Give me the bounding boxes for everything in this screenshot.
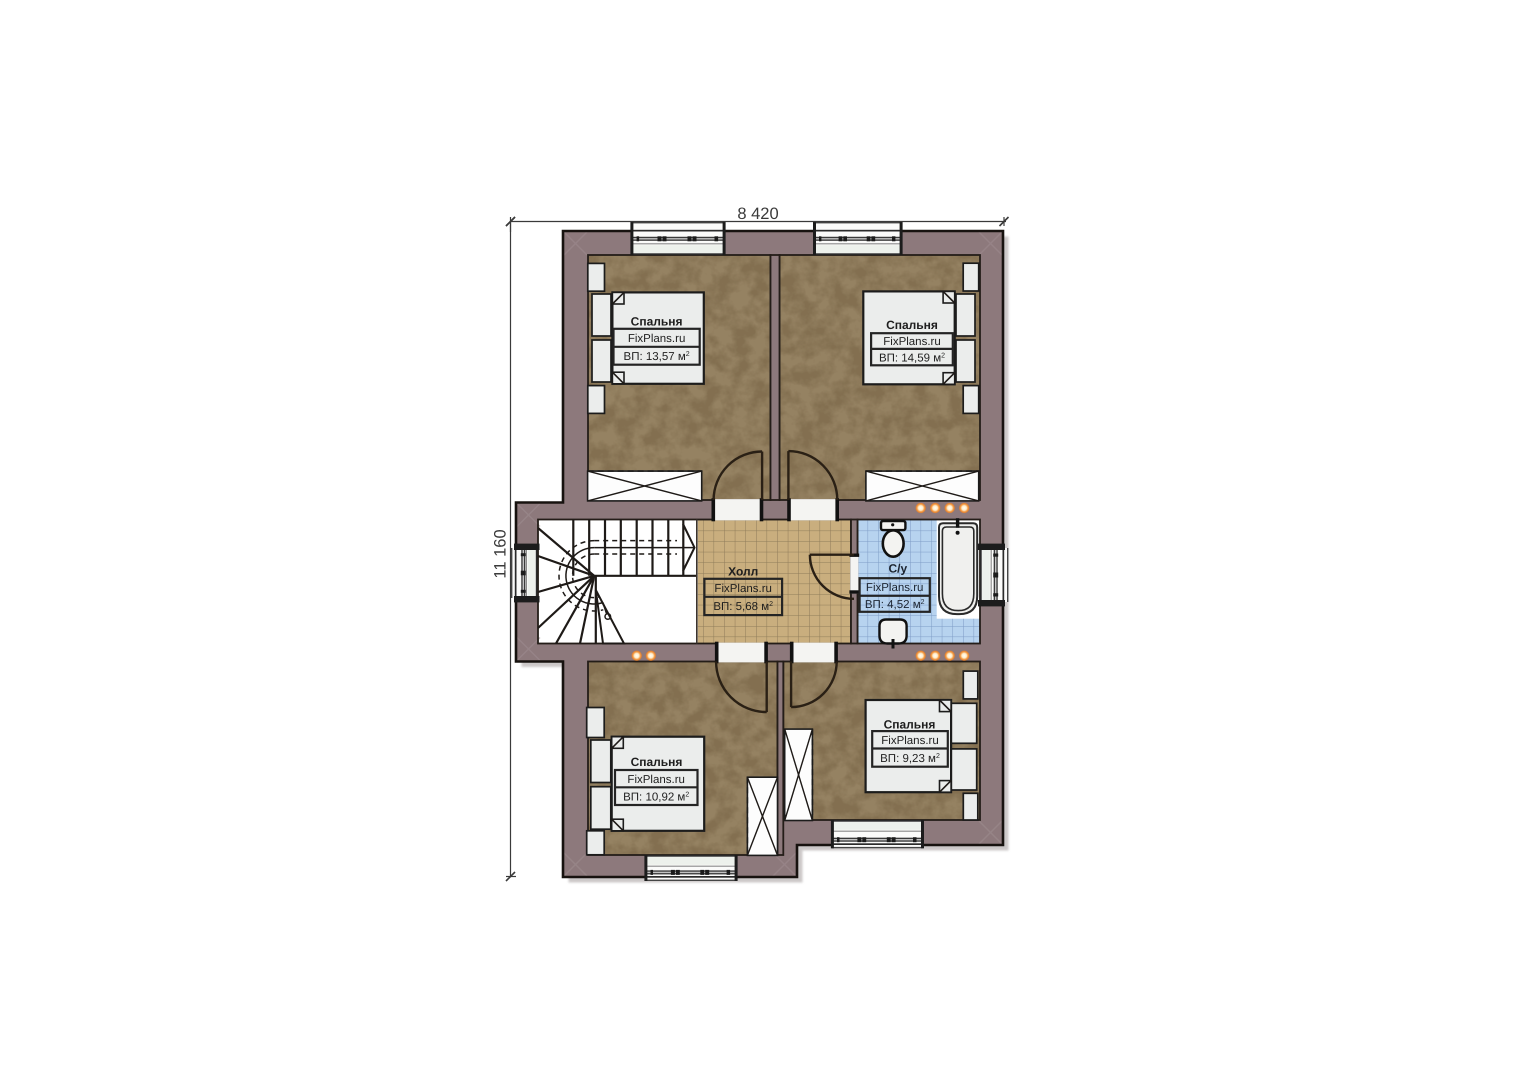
svg-text:ВП: 4,52 м2: ВП: 4,52 м2 bbox=[865, 599, 925, 611]
svg-text:Спальня: Спальня bbox=[631, 314, 683, 328]
svg-text:Спальня: Спальня bbox=[886, 318, 938, 332]
svg-text:ВП: 13,57 м2: ВП: 13,57 м2 bbox=[624, 351, 690, 363]
svg-text:ВП: 10,92 м2: ВП: 10,92 м2 bbox=[623, 791, 689, 803]
svg-text:FixPlans.ru: FixPlans.ru bbox=[866, 582, 924, 594]
svg-text:ВП: 14,59 м2: ВП: 14,59 м2 bbox=[879, 352, 945, 364]
svg-text:ВП: 5,68 м2: ВП: 5,68 м2 bbox=[713, 601, 773, 613]
svg-text:11 160: 11 160 bbox=[492, 529, 510, 578]
svg-text:8 420: 8 420 bbox=[737, 205, 778, 223]
svg-text:Холл: Холл bbox=[728, 565, 758, 579]
svg-text:С/у: С/у bbox=[888, 562, 907, 576]
svg-text:FixPlans.ru: FixPlans.ru bbox=[883, 336, 941, 348]
svg-text:Спальня: Спальня bbox=[884, 717, 936, 731]
svg-text:FixPlans.ru: FixPlans.ru bbox=[714, 583, 772, 595]
svg-text:FixPlans.ru: FixPlans.ru bbox=[627, 774, 685, 786]
svg-text:ВП: 9,23 м2: ВП: 9,23 м2 bbox=[880, 753, 940, 765]
svg-text:FixPlans.ru: FixPlans.ru bbox=[628, 333, 686, 345]
svg-text:FixPlans.ru: FixPlans.ru bbox=[881, 735, 939, 747]
svg-text:Спальня: Спальня bbox=[631, 755, 683, 769]
